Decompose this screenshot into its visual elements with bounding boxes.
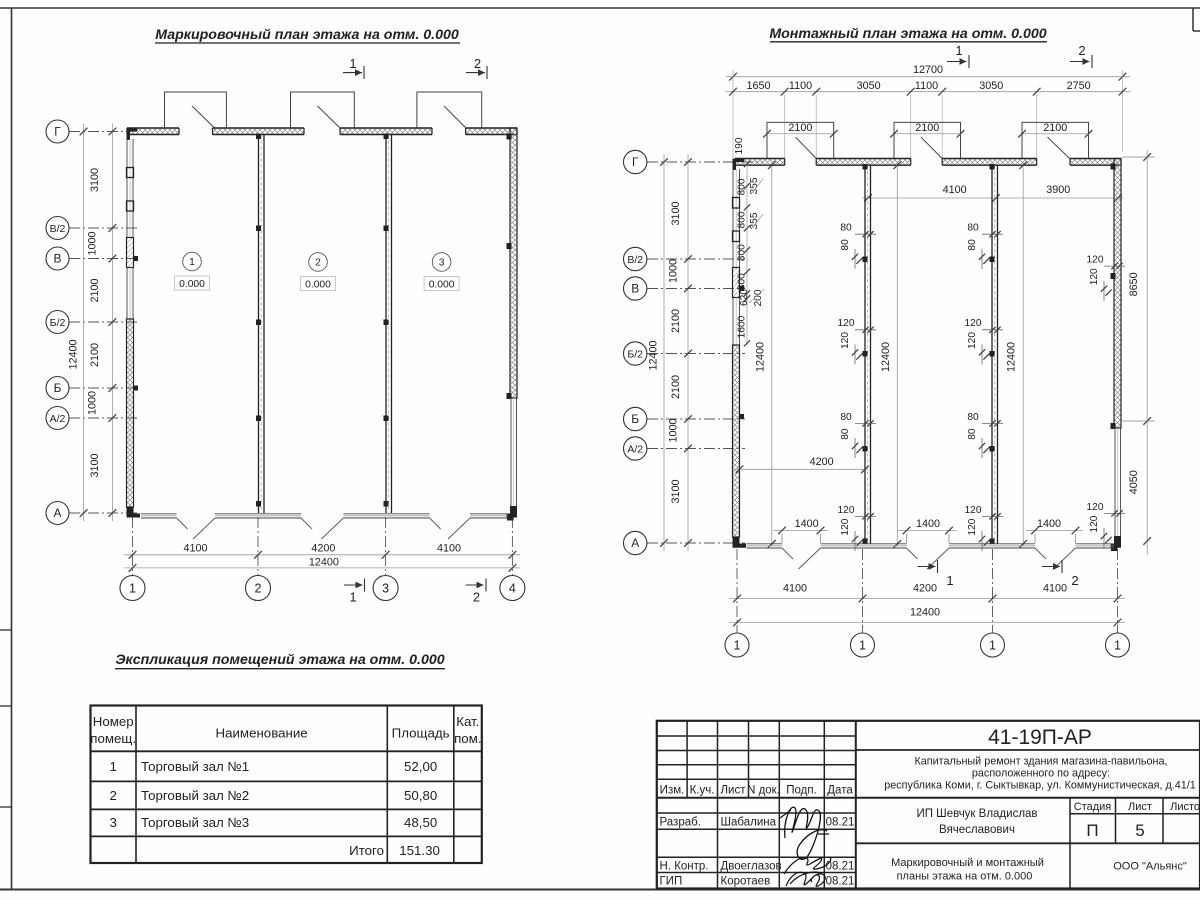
svg-text:Вячеславович: Вячеславович <box>939 824 1015 836</box>
svg-text:1100: 1100 <box>789 80 812 92</box>
svg-text:120: 120 <box>965 318 982 329</box>
svg-text:Торговый зал №3: Торговый зал №3 <box>141 815 249 830</box>
svg-text:ООО "Альянс": ООО "Альянс" <box>1113 861 1187 873</box>
svg-text:1400: 1400 <box>1037 518 1061 530</box>
svg-text:120: 120 <box>1089 515 1100 532</box>
svg-text:0.000: 0.000 <box>429 280 455 291</box>
svg-text:80: 80 <box>967 412 979 423</box>
svg-text:4100: 4100 <box>183 543 207 555</box>
svg-text:Б/2: Б/2 <box>50 317 66 329</box>
svg-text:ГИП: ГИП <box>660 876 683 888</box>
svg-text:Монтажный план этажа на отм. 0: Монтажный план этажа на отм. 0.000 <box>769 26 1046 42</box>
svg-text:1: 1 <box>1114 639 1121 653</box>
svg-text:2: 2 <box>474 56 481 71</box>
svg-text:1000: 1000 <box>87 231 99 255</box>
svg-text:1100: 1100 <box>915 80 938 92</box>
svg-text:800: 800 <box>736 178 747 195</box>
svg-text:Б/2: Б/2 <box>627 349 643 361</box>
svg-text:1: 1 <box>129 582 136 596</box>
svg-text:Номер: Номер <box>93 714 134 729</box>
svg-text:Кат.: Кат. <box>456 714 479 729</box>
svg-text:2100: 2100 <box>89 343 101 367</box>
svg-text:12400: 12400 <box>1006 342 1018 372</box>
svg-text:Б: Б <box>54 381 62 395</box>
svg-text:80: 80 <box>840 223 852 234</box>
svg-text:190: 190 <box>734 137 745 154</box>
svg-text:планы этажа на отм. 0.000: планы этажа на отм. 0.000 <box>897 871 1033 883</box>
svg-text:4200: 4200 <box>311 543 335 555</box>
svg-text:151.30: 151.30 <box>399 843 440 858</box>
svg-text:48,50: 48,50 <box>404 815 437 830</box>
svg-text:0.000: 0.000 <box>179 279 205 290</box>
svg-text:А: А <box>631 536 639 550</box>
svg-text:В/2: В/2 <box>50 223 66 235</box>
svg-text:1400: 1400 <box>795 518 819 530</box>
svg-text:1: 1 <box>109 759 116 774</box>
svg-text:800: 800 <box>736 273 747 290</box>
svg-text:Торговый зал №1: Торговый зал №1 <box>141 759 249 774</box>
svg-text:41-19П-АР: 41-19П-АР <box>988 726 1092 749</box>
svg-text:2100: 2100 <box>1043 122 1067 134</box>
svg-text:2: 2 <box>315 258 321 269</box>
svg-text:N док.: N док. <box>747 785 780 797</box>
svg-text:80: 80 <box>840 412 852 423</box>
svg-text:1000: 1000 <box>668 259 680 283</box>
svg-text:В/2: В/2 <box>627 254 643 266</box>
svg-text:0.000: 0.000 <box>305 280 331 291</box>
svg-text:пом.: пом. <box>454 731 481 746</box>
svg-text:Коротаев: Коротаев <box>721 876 771 888</box>
svg-text:1: 1 <box>349 590 356 605</box>
svg-text:1: 1 <box>955 43 962 58</box>
svg-text:3900: 3900 <box>1046 184 1070 196</box>
svg-text:Стадия: Стадия <box>1074 801 1112 813</box>
svg-text:2100: 2100 <box>670 309 682 333</box>
svg-text:800: 800 <box>736 244 747 261</box>
svg-text:1600: 1600 <box>737 315 748 338</box>
svg-text:помещ.: помещ. <box>90 731 136 746</box>
svg-text:50,80: 50,80 <box>404 788 437 803</box>
svg-text:Б: Б <box>631 412 639 426</box>
svg-text:К.уч.: К.уч. <box>690 785 715 797</box>
svg-text:3: 3 <box>109 815 116 830</box>
svg-text:12400: 12400 <box>68 339 80 369</box>
svg-text:12400: 12400 <box>309 557 339 569</box>
svg-text:1: 1 <box>349 56 356 71</box>
svg-text:620: 620 <box>739 289 750 306</box>
svg-text:120: 120 <box>1087 255 1104 266</box>
svg-text:4100: 4100 <box>1043 583 1067 595</box>
svg-text:4200: 4200 <box>913 583 937 595</box>
svg-text:8650: 8650 <box>1128 272 1140 296</box>
svg-text:2100: 2100 <box>670 375 682 399</box>
svg-text:Г: Г <box>54 125 61 139</box>
svg-text:2: 2 <box>255 582 262 596</box>
svg-text:120: 120 <box>965 505 982 516</box>
svg-text:Лист: Лист <box>1128 801 1152 813</box>
svg-text:08.21: 08.21 <box>826 817 855 829</box>
svg-text:Маркировочный и монтажный: Маркировочный и монтажный <box>891 857 1044 869</box>
svg-text:120: 120 <box>1089 268 1100 285</box>
svg-text:1000: 1000 <box>87 391 99 415</box>
svg-text:80: 80 <box>967 223 979 234</box>
svg-text:52,00: 52,00 <box>404 759 437 774</box>
svg-text:2100: 2100 <box>89 278 101 302</box>
svg-text:А/2: А/2 <box>50 413 66 425</box>
svg-text:Двоеглазов: Двоеглазов <box>721 861 782 873</box>
svg-text:3: 3 <box>439 258 445 269</box>
svg-text:1400: 1400 <box>916 518 940 530</box>
svg-text:Маркировочный план этажа на от: Маркировочный план этажа на отм. 0.000 <box>155 27 459 43</box>
svg-text:Листов: Листов <box>1170 801 1200 813</box>
svg-text:В: В <box>53 252 61 266</box>
svg-text:Подп.: Подп. <box>786 785 817 797</box>
svg-text:Разраб.: Разраб. <box>660 817 701 829</box>
svg-text:12400: 12400 <box>648 340 660 370</box>
svg-text:3100: 3100 <box>670 479 682 503</box>
svg-text:80: 80 <box>840 428 851 440</box>
svg-text:1: 1 <box>946 573 953 588</box>
svg-text:Итого: Итого <box>349 843 384 858</box>
svg-text:1: 1 <box>734 639 741 653</box>
svg-text:355: 355 <box>749 212 760 229</box>
svg-text:Шабалина: Шабалина <box>721 817 777 829</box>
svg-text:12400: 12400 <box>910 607 940 619</box>
svg-text:4100: 4100 <box>437 543 461 555</box>
svg-text:А/2: А/2 <box>627 444 643 456</box>
svg-text:2: 2 <box>473 590 480 605</box>
svg-text:3: 3 <box>382 582 389 596</box>
svg-text:2: 2 <box>1071 573 1078 588</box>
svg-text:Площадь: Площадь <box>392 726 450 741</box>
svg-text:3100: 3100 <box>670 201 682 225</box>
svg-text:В: В <box>631 282 639 296</box>
svg-text:Экспликация помещений этажа на: Экспликация помещений этажа на отм. 0.00… <box>115 652 444 668</box>
svg-text:3100: 3100 <box>89 453 101 477</box>
svg-text:800: 800 <box>736 211 747 228</box>
svg-text:Лист: Лист <box>721 785 747 797</box>
svg-text:ИП Шевчук Владислав: ИП Шевчук Владислав <box>916 808 1037 820</box>
svg-text:4200: 4200 <box>810 456 834 468</box>
svg-text:80: 80 <box>840 239 851 251</box>
svg-text:3050: 3050 <box>979 80 1003 92</box>
svg-text:80: 80 <box>967 239 978 251</box>
svg-text:4100: 4100 <box>783 583 807 595</box>
svg-text:1000: 1000 <box>668 418 680 442</box>
svg-text:А: А <box>53 506 61 520</box>
svg-text:П: П <box>1086 821 1098 840</box>
svg-text:120: 120 <box>967 332 978 349</box>
svg-text:120: 120 <box>840 518 851 535</box>
svg-text:2100: 2100 <box>788 122 812 134</box>
svg-text:4: 4 <box>509 582 516 596</box>
svg-text:120: 120 <box>967 518 978 535</box>
svg-text:2100: 2100 <box>915 122 939 134</box>
svg-text:08.21: 08.21 <box>826 876 855 888</box>
svg-text:Н. Контр.: Н. Контр. <box>660 861 709 873</box>
svg-text:2: 2 <box>109 788 116 803</box>
svg-text:1650: 1650 <box>746 80 770 92</box>
svg-text:4100: 4100 <box>943 184 967 196</box>
svg-text:Наименование: Наименование <box>216 726 308 741</box>
svg-text:1: 1 <box>859 639 866 653</box>
svg-text:355: 355 <box>749 177 760 194</box>
svg-text:2: 2 <box>1078 43 1085 58</box>
svg-text:120: 120 <box>1087 502 1104 513</box>
svg-text:3100: 3100 <box>89 168 101 192</box>
svg-text:Изм.: Изм. <box>660 785 685 797</box>
svg-text:4050: 4050 <box>1128 470 1140 494</box>
svg-text:80: 80 <box>967 428 978 440</box>
svg-text:5: 5 <box>1135 821 1144 840</box>
svg-text:12400: 12400 <box>880 342 892 372</box>
svg-text:Г: Г <box>632 155 639 169</box>
svg-text:3050: 3050 <box>857 80 881 92</box>
svg-text:1: 1 <box>989 639 996 653</box>
svg-text:12700: 12700 <box>913 64 943 76</box>
svg-text:Торговый зал №2: Торговый зал №2 <box>141 788 249 803</box>
svg-text:120: 120 <box>838 505 855 516</box>
svg-text:2750: 2750 <box>1067 80 1091 92</box>
svg-text:Дата: Дата <box>827 785 853 797</box>
svg-text:120: 120 <box>840 332 851 349</box>
svg-text:120: 120 <box>838 318 855 329</box>
svg-text:Капитальный ремонт здания мага: Капитальный ремонт здания магазина-павил… <box>915 756 1168 768</box>
svg-text:1: 1 <box>189 257 195 268</box>
svg-text:расположенного по адресу:: расположенного по адресу: <box>972 768 1110 780</box>
svg-text:республика Коми, г. Сыктывкар,: республика Коми, г. Сыктывкар, ул. Комму… <box>884 779 1196 791</box>
svg-text:12400: 12400 <box>754 342 766 372</box>
